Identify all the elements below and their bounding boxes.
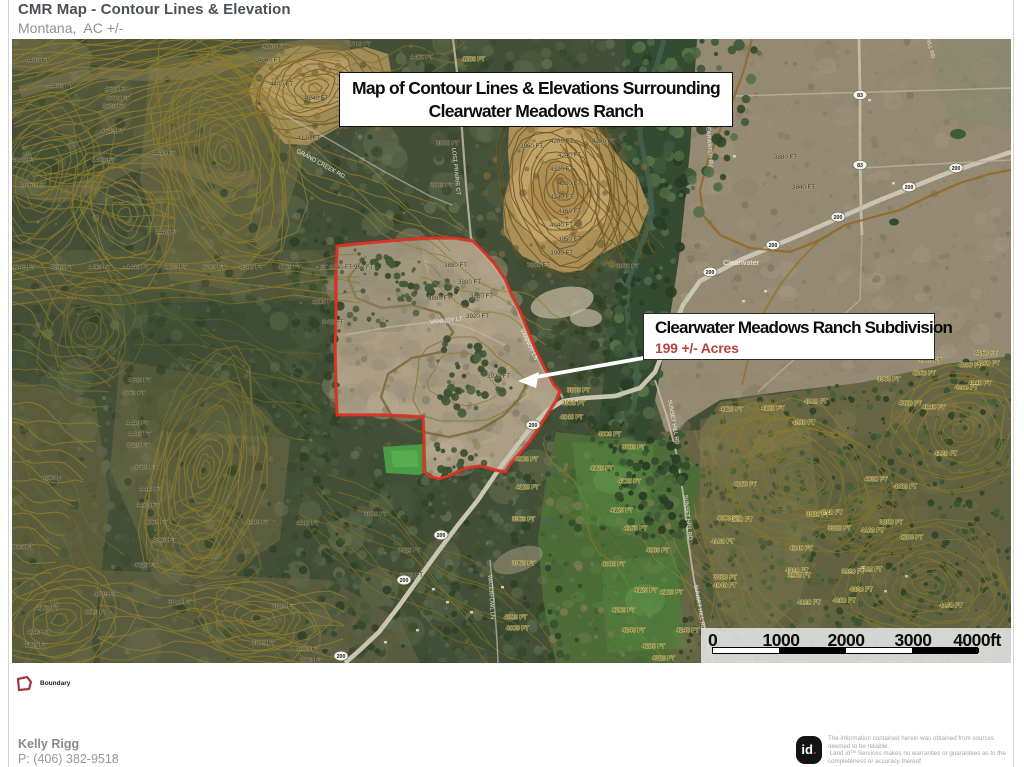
svg-text:4400 FT: 4400 FT	[410, 54, 433, 61]
svg-text:4240 FT: 4240 FT	[50, 264, 73, 271]
svg-text:4340 FT: 4340 FT	[348, 41, 371, 48]
svg-text:4480 FT: 4480 FT	[26, 57, 49, 64]
svg-text:4540 FT: 4540 FT	[12, 157, 35, 164]
svg-text:4520 FT: 4520 FT	[104, 86, 127, 93]
svg-text:4520 FT: 4520 FT	[106, 95, 129, 102]
svg-text:4520 FT: 4520 FT	[102, 103, 125, 110]
svg-text:4480 FT: 4480 FT	[92, 157, 115, 164]
svg-text:4400 FT: 4400 FT	[164, 264, 187, 271]
svg-text:4200 FT: 4200 FT	[258, 57, 281, 64]
svg-text:4440 FT: 4440 FT	[126, 264, 149, 271]
svg-text:4400 FT: 4400 FT	[88, 264, 111, 271]
svg-text:4200 FT: 4200 FT	[202, 264, 225, 271]
svg-text:- FT 4040 FT: - FT 4040 FT	[316, 264, 352, 271]
svg-text:4520 FT: 4520 FT	[101, 128, 124, 135]
svg-text:4240 FT: 4240 FT	[240, 264, 263, 271]
svg-text:4240 FT: 4240 FT	[12, 264, 35, 271]
svg-text:4560 FT: 4560 FT	[22, 182, 45, 189]
svg-text:4260 FT: 4260 FT	[262, 43, 285, 50]
svg-text:4440 FT: 4440 FT	[152, 150, 175, 157]
svg-text:4440 FT: 4440 FT	[155, 229, 178, 236]
svg-text:4160 FT: 4160 FT	[278, 264, 301, 271]
svg-text:4480 FT: 4480 FT	[50, 83, 73, 90]
svg-text:4120 FT: 4120 FT	[297, 135, 320, 142]
svg-text:4240 FT: 4240 FT	[305, 95, 328, 102]
svg-text:4400 FT: 4400 FT	[270, 81, 293, 88]
